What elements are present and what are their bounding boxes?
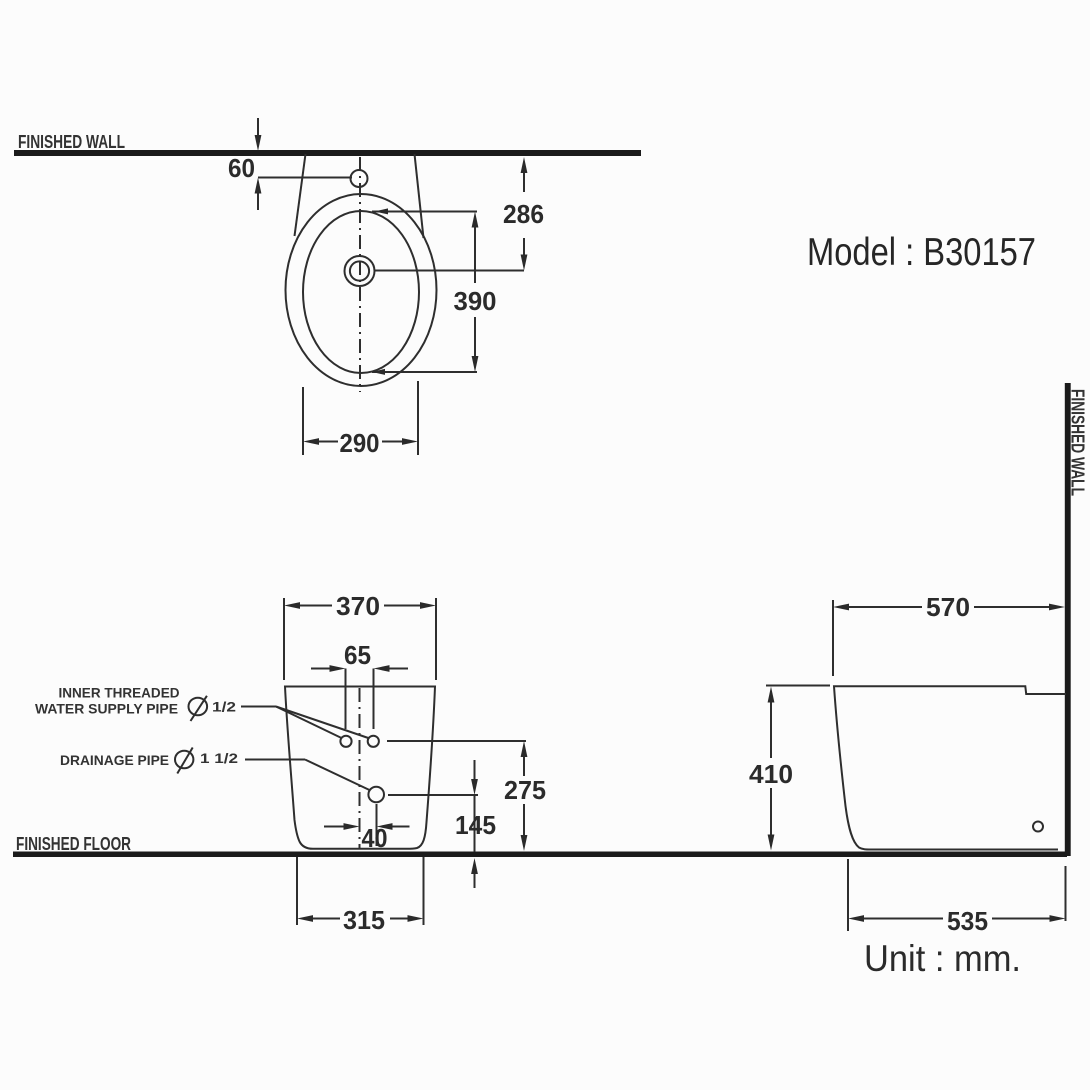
svg-text:65: 65 — [344, 640, 371, 670]
svg-text:370: 370 — [336, 591, 380, 621]
svg-text:315: 315 — [343, 905, 385, 935]
svg-text:Unit : mm.: Unit : mm. — [864, 938, 1021, 979]
svg-text:WATER SUPPLY PIPE: WATER SUPPLY PIPE — [35, 701, 178, 717]
svg-text:60: 60 — [228, 153, 255, 183]
svg-text:FINISHED WALL: FINISHED WALL — [1068, 389, 1088, 496]
svg-text:145: 145 — [455, 810, 496, 840]
svg-text:390: 390 — [454, 286, 497, 316]
svg-text:Model : B30157: Model : B30157 — [807, 231, 1036, 274]
svg-text:286: 286 — [503, 199, 544, 229]
svg-text:FINISHED FLOOR: FINISHED FLOOR — [16, 834, 131, 854]
svg-text:410: 410 — [749, 759, 793, 789]
svg-text:275: 275 — [504, 775, 546, 805]
svg-text:40: 40 — [362, 823, 388, 853]
svg-text:570: 570 — [926, 592, 970, 622]
svg-text:1 1/2: 1 1/2 — [200, 750, 238, 766]
svg-text:DRAINAGE PIPE: DRAINAGE PIPE — [60, 752, 169, 768]
svg-text:INNER THREADED: INNER THREADED — [59, 685, 180, 701]
svg-text:290: 290 — [340, 428, 380, 458]
svg-text:535: 535 — [947, 906, 988, 936]
svg-text:FINISHED WALL: FINISHED WALL — [18, 132, 125, 152]
svg-text:1/2: 1/2 — [212, 699, 236, 715]
